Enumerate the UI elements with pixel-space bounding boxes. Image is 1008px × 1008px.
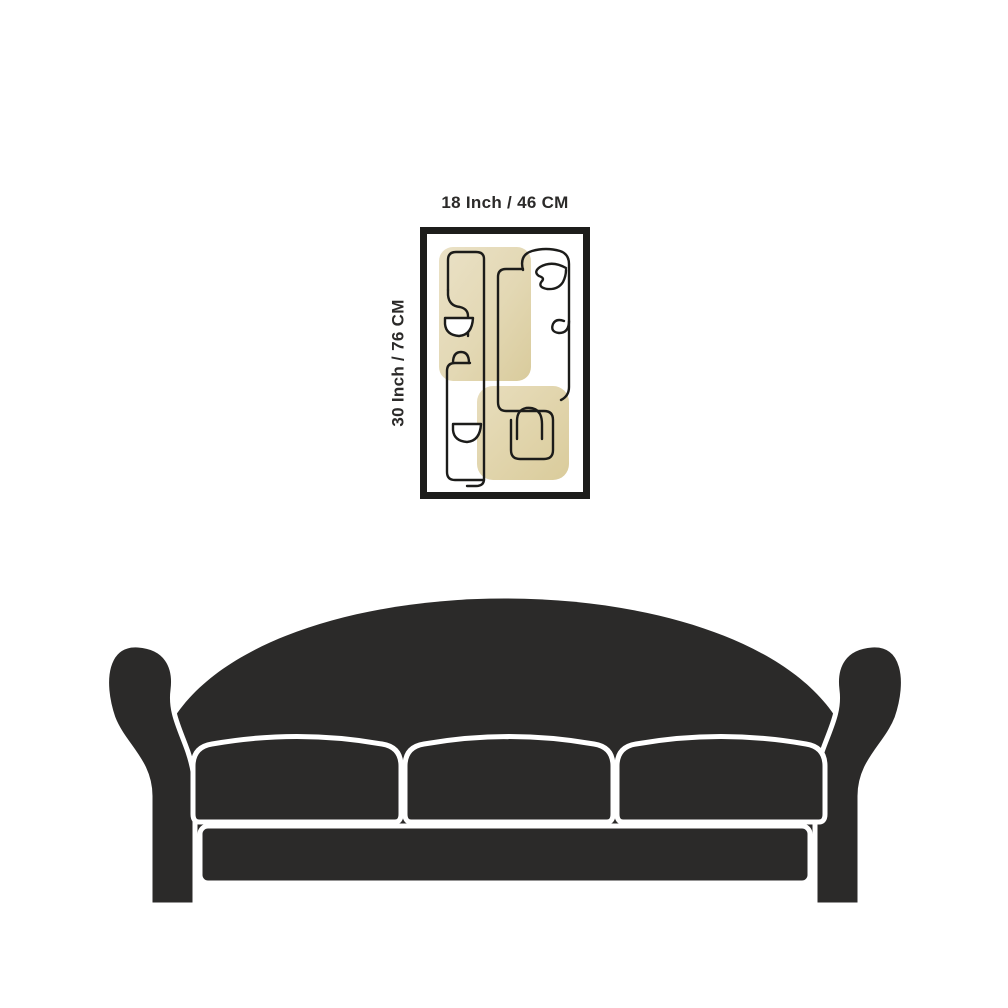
sofa-silhouette-wrap: [100, 596, 910, 910]
wall-art-frame: [420, 227, 590, 499]
sofa-arm-right: [815, 645, 903, 905]
line-art-b-squiggle: [536, 264, 566, 289]
sofa-cushion-3: [617, 737, 825, 823]
line-art-mouth-bowl-bottom: [453, 424, 481, 442]
sofa-arm-left: [107, 645, 195, 905]
height-dimension-label: 30 Inch / 76 CM: [389, 299, 409, 426]
height-dimension-label-wrap: 30 Inch / 76 CM: [384, 227, 414, 499]
line-art-hook: [552, 320, 569, 333]
sofa-base: [200, 826, 810, 883]
sofa-silhouette: [100, 596, 910, 910]
sofa-shapes: [107, 599, 904, 906]
sofa-cushion-2: [405, 737, 613, 823]
page-root: { "page": { "background_color": "#ffffff…: [0, 0, 1008, 1008]
beige-wash-bottom: [477, 386, 569, 480]
abstract-line-art-canvas: [427, 234, 583, 492]
width-dimension-label: 18 Inch / 46 CM: [420, 193, 590, 213]
sofa-cushion-1: [193, 737, 401, 823]
